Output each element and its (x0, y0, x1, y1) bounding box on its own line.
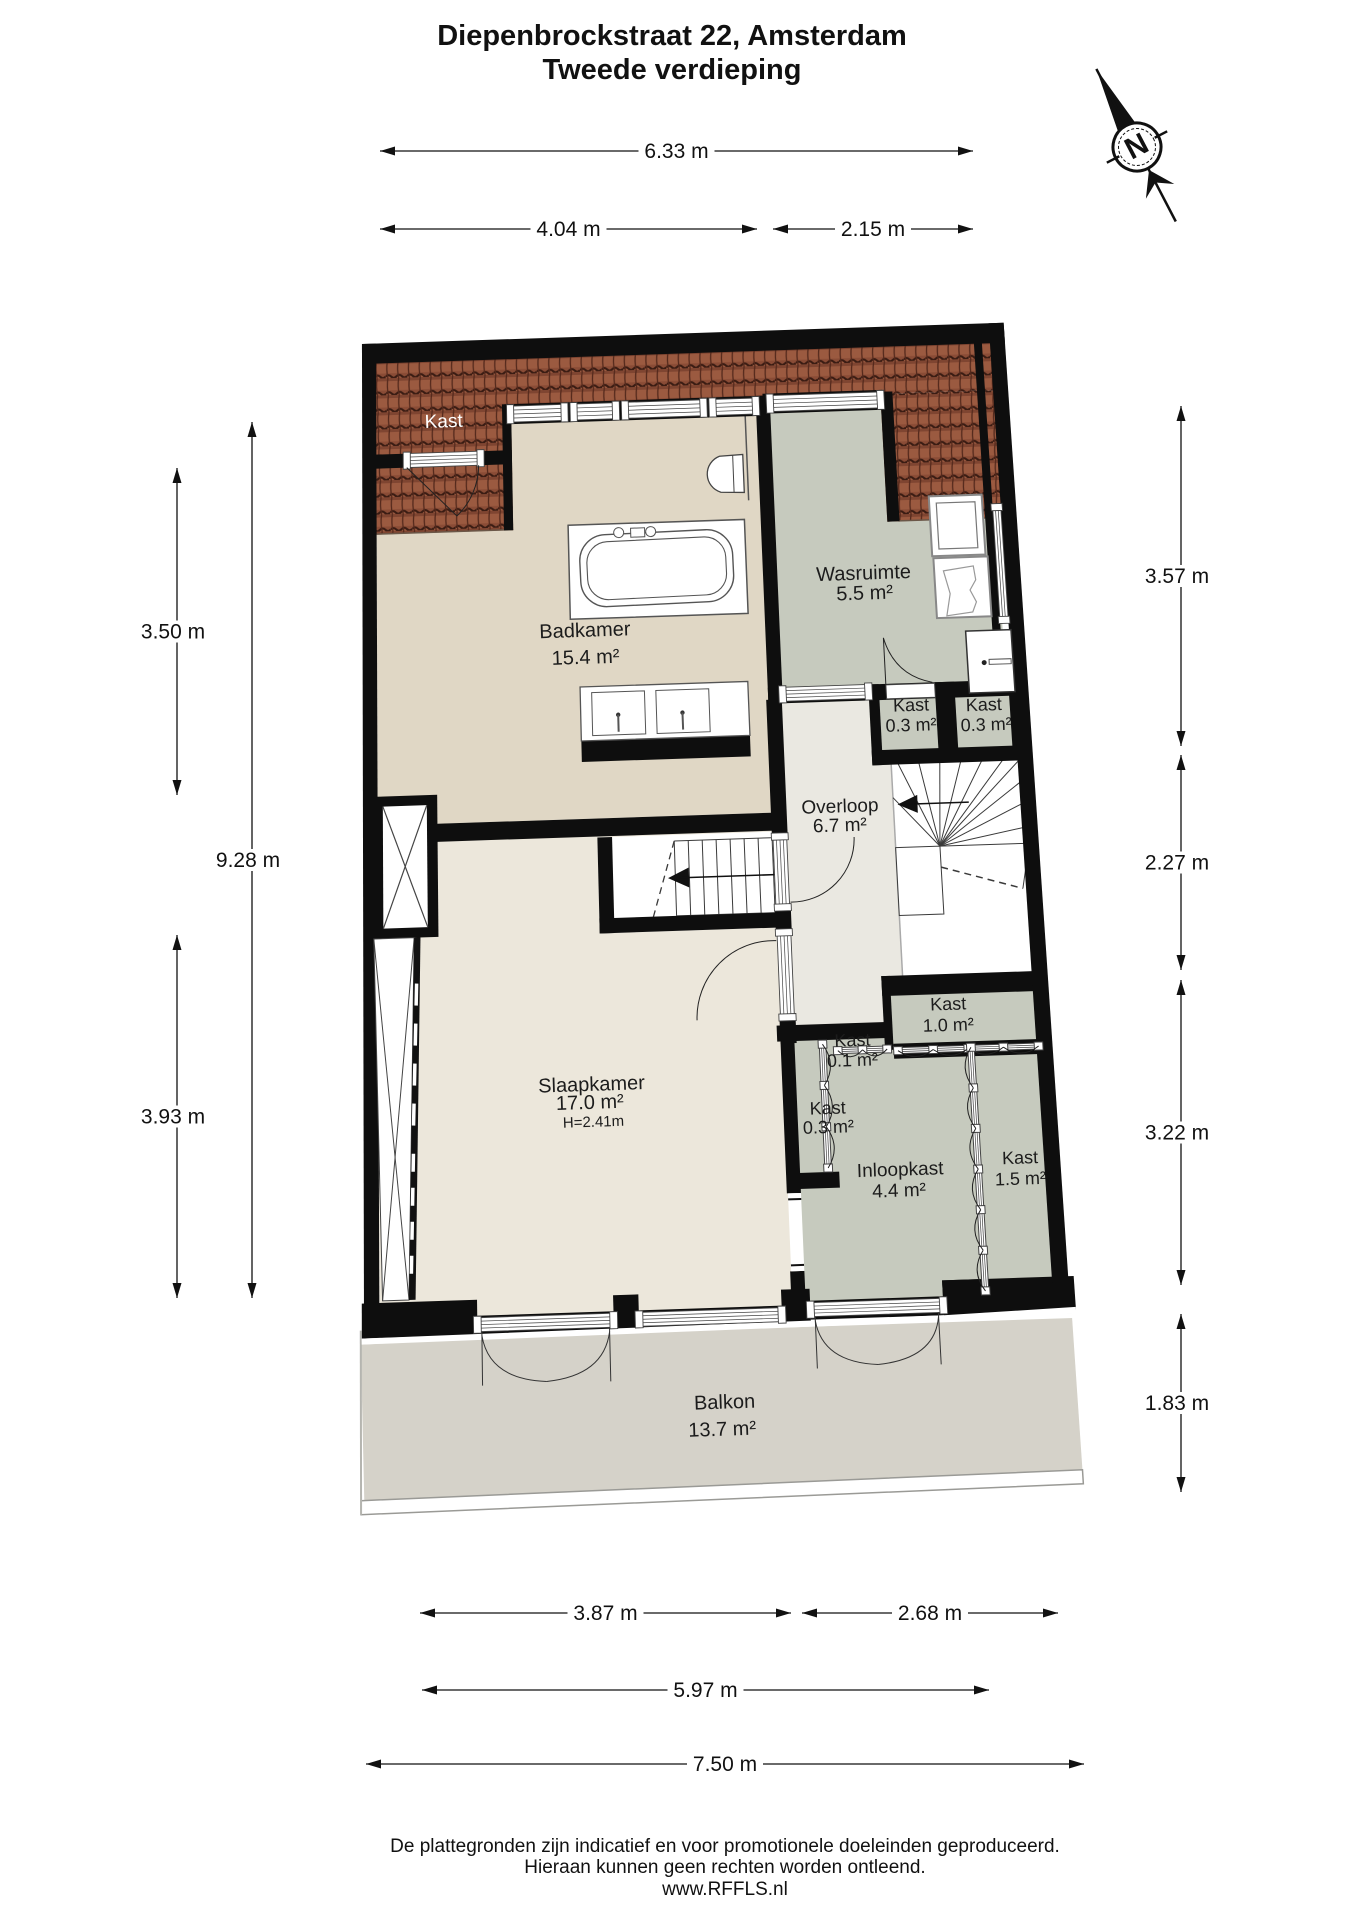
svg-text:3.22 m: 3.22 m (1145, 1122, 1209, 1145)
svg-text:Hieraan kunnen geen rechten wo: Hieraan kunnen geen rechten worden ontle… (524, 1857, 925, 1878)
svg-text:3.57 m: 3.57 m (1145, 565, 1209, 588)
svg-text:Kast: Kast (966, 694, 1003, 715)
svg-text:1.5 m²: 1.5 m² (995, 1168, 1047, 1190)
svg-text:3.87 m: 3.87 m (573, 1602, 637, 1625)
svg-text:0.3 m²: 0.3 m² (960, 714, 1012, 736)
svg-text:0.1 m²: 0.1 m² (827, 1049, 879, 1071)
svg-text:2.15 m: 2.15 m (841, 218, 905, 241)
svg-text:17.0 m²: 17.0 m² (556, 1091, 625, 1115)
svg-text:Kast: Kast (834, 1030, 871, 1051)
svg-text:1.83 m: 1.83 m (1145, 1392, 1209, 1415)
svg-text:H=2.41m: H=2.41m (563, 1113, 625, 1132)
svg-text:Inloopkast: Inloopkast (857, 1158, 945, 1182)
svg-text:6.7 m²: 6.7 m² (813, 815, 868, 838)
svg-text:5.97 m: 5.97 m (673, 1679, 737, 1702)
svg-text:Badkamer: Badkamer (539, 618, 631, 643)
svg-text:Kast: Kast (930, 993, 967, 1014)
svg-text:Kast: Kast (893, 694, 930, 715)
svg-text:9.28 m: 9.28 m (216, 849, 280, 872)
svg-text:0.3 m²: 0.3 m² (885, 714, 937, 736)
svg-text:Tweede verdieping: Tweede verdieping (543, 54, 802, 86)
svg-text:3.93 m: 3.93 m (141, 1106, 205, 1129)
svg-text:Kast: Kast (1002, 1147, 1039, 1168)
svg-text:5.5 m²: 5.5 m² (836, 582, 894, 606)
svg-text:15.4 m²: 15.4 m² (551, 646, 620, 670)
svg-text:Kast: Kast (424, 411, 463, 433)
svg-text:De plattegronden zijn indicati: De plattegronden zijn indicatief en voor… (390, 1836, 1060, 1857)
svg-text:6.33 m: 6.33 m (644, 140, 708, 163)
svg-text:4.4 m²: 4.4 m² (872, 1180, 927, 1203)
svg-text:Kast: Kast (809, 1097, 846, 1118)
svg-text:1.0 m²: 1.0 m² (922, 1014, 974, 1036)
svg-text:Diepenbrockstraat 22, Amsterda: Diepenbrockstraat 22, Amsterdam (437, 20, 907, 52)
svg-text:Balkon: Balkon (694, 1391, 756, 1415)
svg-text:7.50 m: 7.50 m (693, 1753, 757, 1776)
svg-text:2.68 m: 2.68 m (898, 1602, 962, 1625)
svg-text:3.50 m: 3.50 m (141, 621, 205, 644)
svg-text:www.RFFLS.nl: www.RFFLS.nl (661, 1879, 788, 1900)
svg-text:13.7 m²: 13.7 m² (688, 1418, 757, 1442)
svg-text:2.27 m: 2.27 m (1145, 852, 1209, 875)
svg-text:4.04 m: 4.04 m (536, 218, 600, 241)
svg-text:0.3 m²: 0.3 m² (803, 1116, 855, 1138)
